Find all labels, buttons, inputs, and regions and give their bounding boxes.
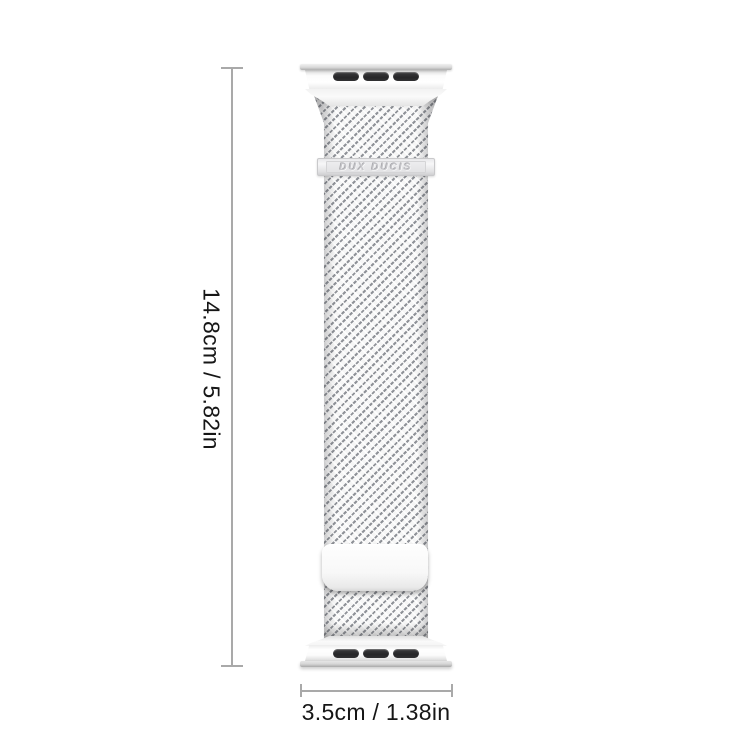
connector-slot-icon	[363, 72, 389, 81]
connector-slot-icon	[333, 649, 359, 658]
bottom-connector-slots	[333, 649, 419, 658]
bottom-strap-taper	[305, 636, 447, 646]
connector-slot-icon	[393, 649, 419, 658]
width-dimension-line	[301, 690, 452, 692]
width-dimension-label: 3.5cm / 1.38in	[302, 699, 451, 726]
height-dimension-bottom-tick	[221, 665, 243, 667]
top-strap-taper	[305, 89, 447, 106]
top-lug-adapter	[305, 70, 447, 89]
height-dimension-label: 14.8cm / 5.82in	[198, 288, 225, 450]
top-connector-rail	[300, 64, 452, 70]
brand-logo-text: DUX DUCIS	[339, 162, 412, 173]
product-dimension-diagram: 14.8cm / 5.82in 3.5cm / 1.38in DUX DUCIS	[0, 0, 750, 750]
bottom-lug-adapter	[305, 645, 447, 661]
connector-slot-icon	[393, 72, 419, 81]
connector-slot-icon	[363, 649, 389, 658]
brand-keeper-slider: DUX DUCIS	[317, 158, 435, 176]
watch-band-image: DUX DUCIS	[300, 64, 452, 670]
width-dimension-right-tick	[451, 684, 453, 697]
brand-keeper-plate: DUX DUCIS	[326, 161, 426, 173]
height-dimension-line	[231, 68, 233, 666]
connector-slot-icon	[333, 72, 359, 81]
top-connector-slots	[333, 72, 419, 81]
magnetic-clasp-plate	[322, 544, 428, 591]
bottom-connector-rail	[300, 661, 452, 667]
